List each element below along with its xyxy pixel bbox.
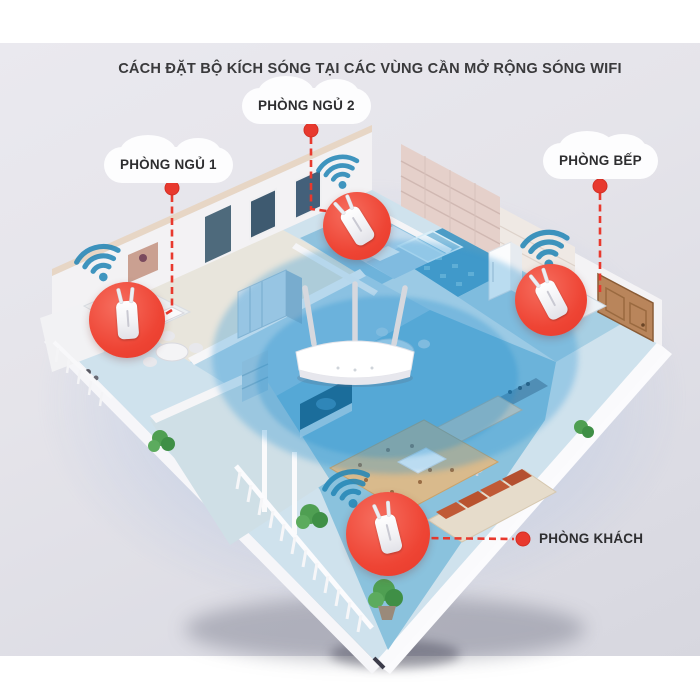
- router-body: [296, 341, 414, 385]
- connector-living: [420, 538, 514, 539]
- extender-antenna: [528, 274, 540, 288]
- red-marker-dot-bedroom2: [304, 123, 318, 137]
- extender-spot-kitchen: [515, 264, 587, 336]
- extender-antenna: [386, 501, 390, 516]
- red-marker-dot-living: [516, 532, 530, 546]
- wifi-placement-infographic: PHÒNG NGỦ 2 PHÒNG NGỦ 1 PHÒNG BẾP PHÒNG …: [0, 0, 700, 700]
- extender-antenna: [345, 195, 353, 210]
- room-label-text: PHÒNG NGỦ 1: [120, 157, 217, 172]
- room-label-bedroom1: PHÒNG NGỦ 1: [104, 147, 233, 183]
- extender-spot-bedroom2: [323, 192, 391, 260]
- connector-bedroom1: [161, 195, 172, 317]
- infographic-title: CÁCH ĐẶT BỘ KÍCH SÓNG TẠI CÁC VÙNG CẦN M…: [40, 61, 700, 77]
- wifi-extender-icon: [338, 204, 376, 247]
- wifi-extender-icon: [533, 278, 569, 321]
- wifi-extender-icon: [115, 300, 139, 339]
- room-label-bedroom2: PHÒNG NGỦ 2: [242, 88, 371, 124]
- extender-slot: [385, 524, 391, 541]
- extender-slot: [351, 217, 362, 232]
- extender-antenna: [129, 288, 134, 303]
- extender-antenna: [372, 504, 381, 519]
- extender-antenna: [541, 268, 548, 283]
- router-antennas: [305, 284, 405, 344]
- room-label-text: PHÒNG NGỦ 2: [258, 98, 355, 113]
- extender-antenna: [116, 288, 123, 303]
- wifi-extender-icon: [373, 513, 403, 555]
- extender-slot: [545, 291, 555, 307]
- extender-antenna: [333, 202, 345, 215]
- room-label-living: PHÒNG KHÁCH: [539, 531, 643, 546]
- room-label-kitchen: PHÒNG BẾP: [543, 143, 658, 179]
- wifi-router-device: [278, 280, 432, 394]
- red-marker-dot-kitchen: [593, 179, 607, 193]
- extender-slot: [125, 310, 128, 327]
- room-label-text: PHÒNG BẾP: [559, 153, 642, 168]
- extender-spot-living: [346, 492, 430, 576]
- red-marker-dot-bedroom1: [165, 181, 179, 195]
- extender-spot-bedroom1: [89, 282, 165, 358]
